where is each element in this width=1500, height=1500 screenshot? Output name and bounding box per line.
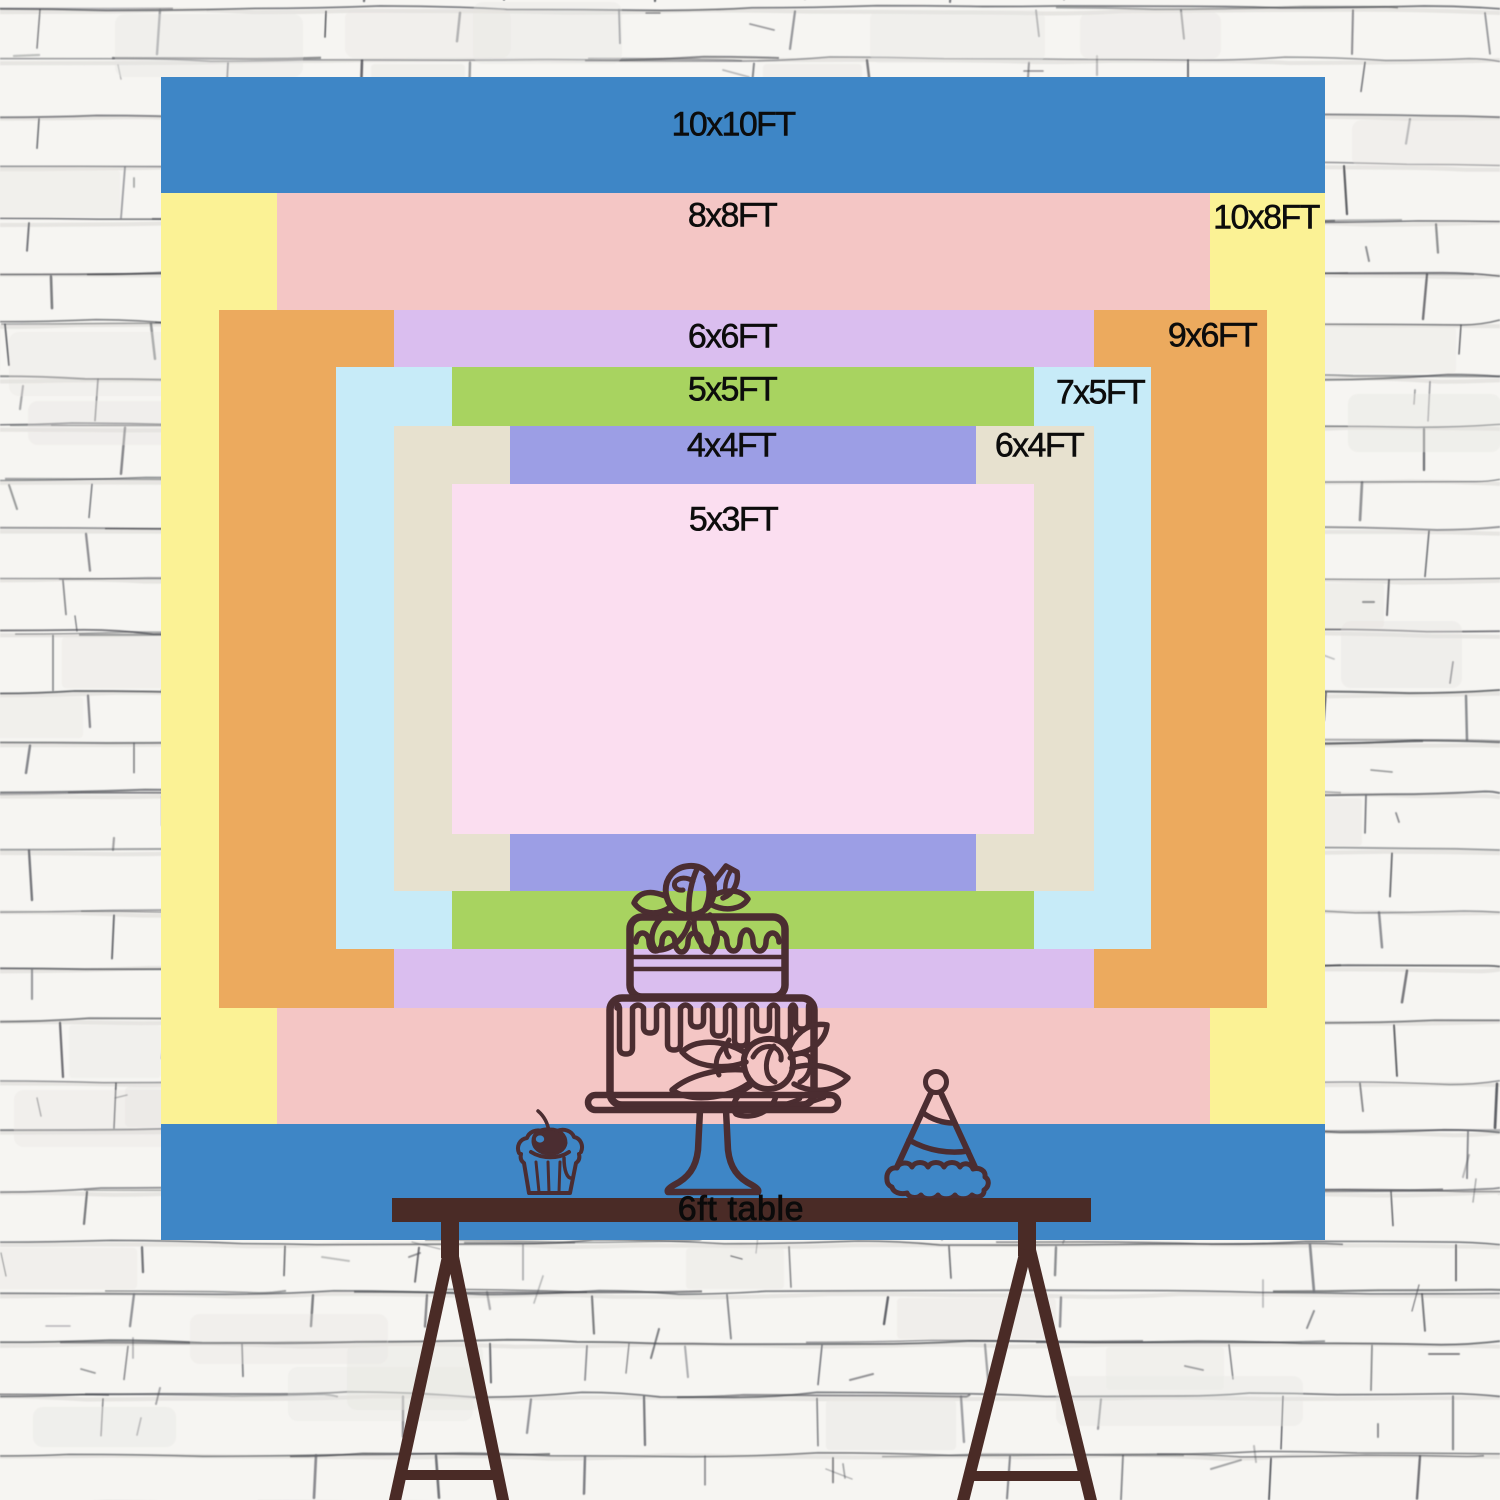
svg-text:6ft table: 6ft table	[678, 1190, 804, 1228]
